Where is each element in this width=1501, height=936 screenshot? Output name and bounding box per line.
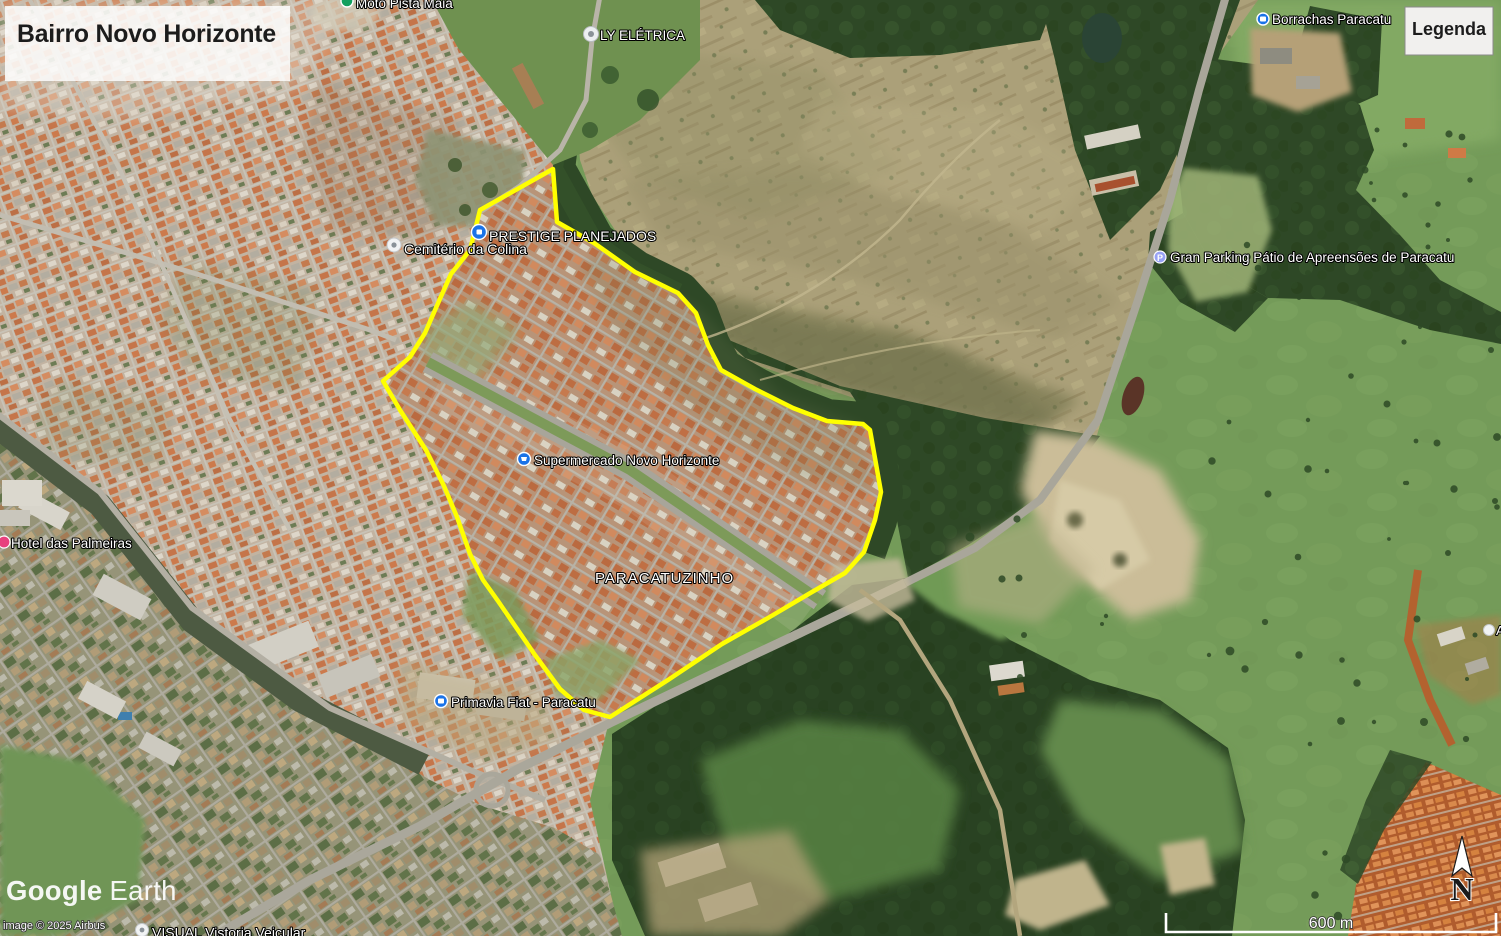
svg-text:image © 2025 Airbus: image © 2025 Airbus bbox=[3, 920, 106, 932]
svg-text:Primavia Fiat - Paracatu: Primavia Fiat - Paracatu bbox=[451, 695, 596, 710]
svg-text:Hotel das Palmeiras: Hotel das Palmeiras bbox=[11, 536, 132, 551]
svg-text:Bairro Novo Horizonte: Bairro Novo Horizonte bbox=[17, 21, 276, 48]
svg-text:Cemitério da Colina: Cemitério da Colina bbox=[404, 241, 527, 257]
svg-text:LY ELÉTRICA: LY ELÉTRICA bbox=[600, 28, 685, 43]
svg-text:A: A bbox=[1496, 623, 1501, 638]
svg-text:Legenda: Legenda bbox=[1412, 19, 1487, 39]
svg-text:VISUAL Vistoria Veicular: VISUAL Vistoria Veicular bbox=[152, 925, 306, 936]
svg-text:600 m: 600 m bbox=[1309, 915, 1353, 932]
svg-text:Moto Pista Maiá: Moto Pista Maiá bbox=[356, 0, 453, 11]
svg-text:N: N bbox=[1450, 871, 1473, 907]
svg-text:P: P bbox=[1157, 253, 1163, 263]
svg-text:Supermercado Novo Horizonte: Supermercado Novo Horizonte bbox=[534, 453, 719, 468]
svg-text:Borrachas Paracatu: Borrachas Paracatu bbox=[1272, 12, 1391, 27]
svg-text:GoogleEarth: GoogleEarth bbox=[6, 875, 177, 906]
svg-text:PARACATUZINHO: PARACATUZINHO bbox=[595, 570, 734, 587]
svg-text:Gran Parking Pátio de Apreensõ: Gran Parking Pátio de Apreensões de Para… bbox=[1170, 250, 1454, 265]
